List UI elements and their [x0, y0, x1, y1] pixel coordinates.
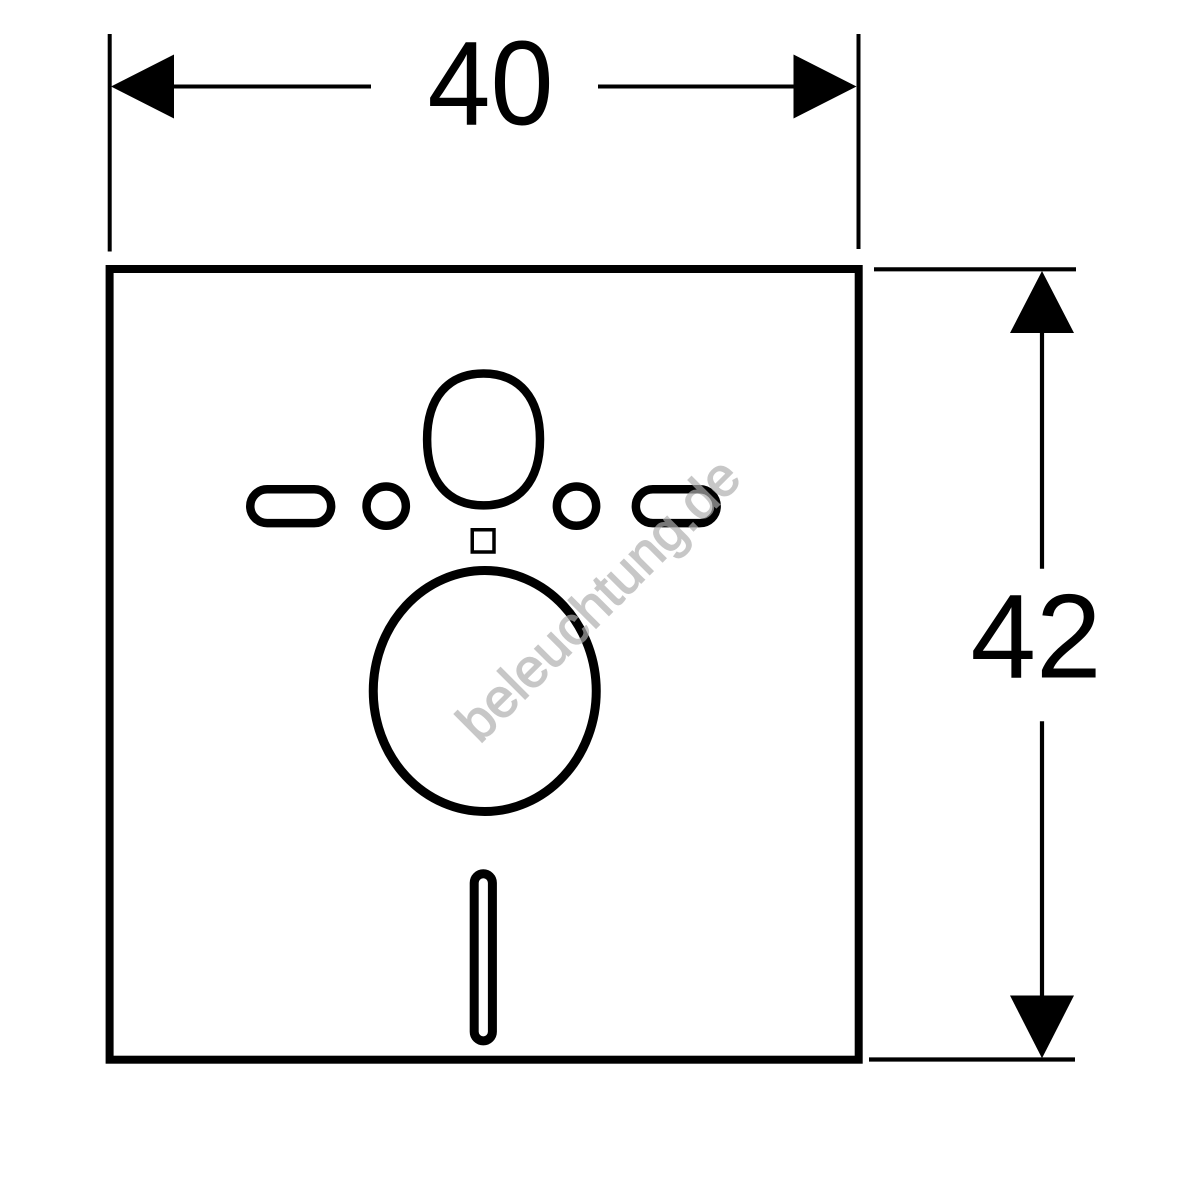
- svg-text:40: 40: [428, 17, 554, 151]
- svg-text:42: 42: [971, 570, 1102, 704]
